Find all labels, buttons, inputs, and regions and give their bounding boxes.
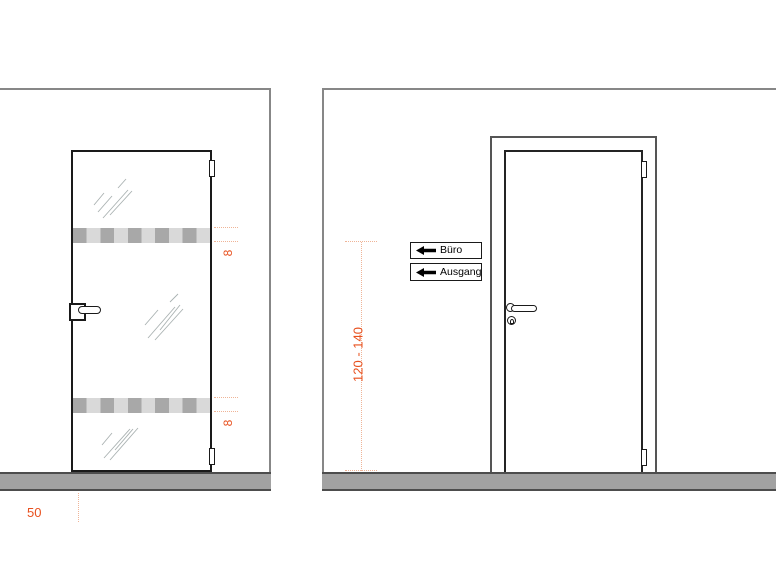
glass-door-handle [78, 306, 101, 314]
right-wall-left-line [322, 88, 324, 491]
sign-buero: Büro [410, 242, 482, 259]
dim-label-sign-mounting-height: 120 - 140 [352, 315, 365, 395]
left-wall-top-line [0, 88, 271, 90]
dim-tick-band-bottom-lower [214, 411, 238, 412]
safety-marking-band-top [73, 228, 210, 243]
dim-label-band-bottom-height: 8 [222, 415, 234, 431]
door-hinge-bottom [641, 449, 647, 466]
left-floor [0, 472, 271, 491]
left-arrow-icon [416, 268, 436, 277]
door-handle [511, 305, 537, 312]
door-marking-diagram: 8 8 50 Büro Ausgang 120 - 140 [0, 0, 776, 582]
sign-ausgang-label: Ausgang [440, 267, 481, 278]
left-wall-right-line [269, 88, 271, 491]
left-arrow-icon [416, 246, 436, 255]
dim-label-floor-reference: 50 [27, 506, 41, 519]
dim-tick-band-top-upper [214, 227, 238, 228]
door-hinge-top [641, 161, 647, 178]
sign-buero-label: Büro [440, 245, 462, 256]
glass-door-hinge-bottom [209, 448, 215, 465]
safety-marking-band-bottom [73, 398, 210, 413]
dim-label-band-top-height: 8 [222, 245, 234, 261]
glass-door-hinge-top [209, 160, 215, 177]
sign-ausgang: Ausgang [410, 263, 482, 281]
dim-line-floor-reference [78, 493, 79, 522]
right-wall-top-line [322, 88, 776, 90]
door-keyhole [507, 316, 516, 325]
right-floor [322, 472, 776, 491]
dim-tick-sign-height-bottom [345, 470, 377, 471]
dim-tick-band-top-lower [214, 241, 238, 242]
dim-tick-band-bottom-upper [214, 397, 238, 398]
